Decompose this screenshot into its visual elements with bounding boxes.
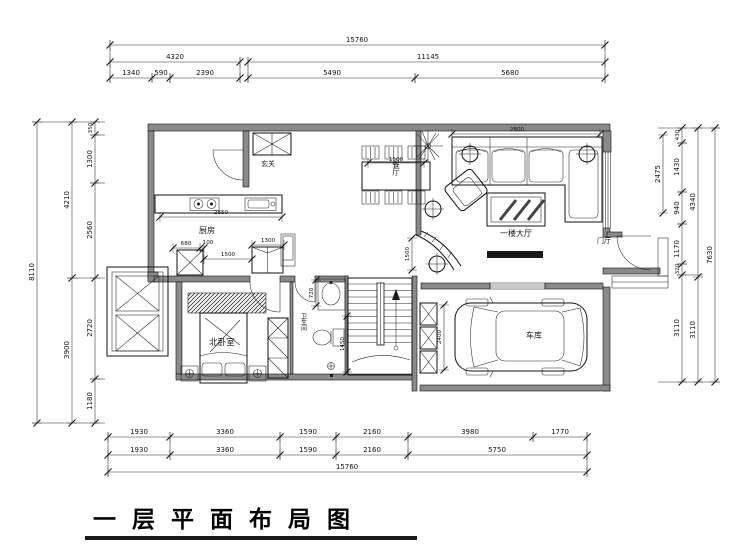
ceiling-lamp-icon bbox=[576, 143, 598, 165]
dim-label: 1930 bbox=[130, 446, 148, 454]
dim-label: 350 bbox=[88, 122, 94, 133]
room-label-kitchen: 厨房 bbox=[199, 225, 215, 235]
ceiling-lamp-icon bbox=[422, 198, 444, 220]
dim-label: 430 bbox=[675, 129, 681, 140]
dim-label: 15760 bbox=[336, 463, 358, 471]
dim-label: 3110 bbox=[689, 321, 697, 339]
dim-label: 100 bbox=[203, 240, 214, 246]
door-swing-main-entry bbox=[617, 236, 651, 270]
dim-label: 2160 bbox=[363, 446, 381, 454]
dim-label: 720 bbox=[309, 287, 315, 298]
dim-label: 2720 bbox=[86, 319, 94, 337]
room-dining: 1500 餐厅 bbox=[362, 130, 443, 204]
room-garage: 2400 车库 bbox=[420, 297, 587, 377]
dim-label: 590 bbox=[154, 69, 167, 77]
dim-label: 5680 bbox=[501, 69, 519, 77]
lightwell bbox=[107, 267, 168, 356]
room-entry: 玄关 bbox=[213, 133, 291, 180]
dim-label: 4320 bbox=[166, 53, 184, 61]
ceiling-lamp-icon bbox=[459, 143, 481, 165]
bedroom-wardrobe bbox=[268, 318, 288, 378]
dim-label: 8110 bbox=[28, 263, 36, 281]
dim-label: 4340 bbox=[689, 193, 697, 211]
dim-label: 1180 bbox=[86, 392, 94, 410]
headboard-feature-wall bbox=[188, 293, 266, 313]
dim-label: 320 bbox=[675, 263, 681, 274]
washbasin-icon bbox=[318, 279, 345, 310]
dim-label: 2850 bbox=[214, 210, 229, 216]
drawing-title: 一 层 平 面 布 局 图 bbox=[93, 506, 354, 533]
dim-label: 2400 bbox=[437, 329, 443, 344]
stair-direction-arrow bbox=[392, 289, 400, 350]
dim-label: 3360 bbox=[216, 428, 234, 436]
room-label-garage: 车库 bbox=[526, 330, 542, 340]
garage-storage bbox=[420, 303, 437, 373]
dim-label: 2800 bbox=[510, 127, 525, 133]
title-block: 一 层 平 面 布 局 图 bbox=[85, 506, 417, 540]
dim-label: 1170 bbox=[673, 240, 681, 258]
sofa bbox=[452, 137, 602, 222]
door-swing-entry bbox=[213, 150, 243, 180]
room-label-dining: 餐厅 bbox=[391, 160, 400, 176]
dim-label: 5490 bbox=[323, 69, 341, 77]
title-underline bbox=[85, 536, 417, 540]
staircase bbox=[348, 278, 412, 375]
floor-plan-drawing: 15760 4320 11145 1340 590 2390 5490 5680… bbox=[0, 0, 740, 555]
dim-label: 4210 bbox=[63, 191, 71, 209]
dim-label: 11145 bbox=[417, 53, 439, 61]
rug bbox=[487, 193, 545, 226]
dim-label: 3360 bbox=[216, 446, 234, 454]
dim-label: 1500 bbox=[221, 252, 236, 258]
tv-stand bbox=[487, 251, 543, 258]
dimension-chain-left: 8110 4210 3900 350 1300 2560 2720 1180 bbox=[28, 119, 105, 427]
dim-label: 1430 bbox=[673, 158, 681, 176]
dim-label: 2160 bbox=[363, 428, 381, 436]
hall-closets: 680 100 1500 1300 bbox=[170, 238, 288, 275]
stove-icon bbox=[190, 198, 219, 211]
room-label-foyer: 门厅 bbox=[597, 236, 611, 245]
dim-label: 680 bbox=[181, 241, 192, 247]
room-label-bathroom: 卫生间 bbox=[300, 313, 307, 332]
room-foyer: 门厅 bbox=[597, 236, 668, 288]
dim-label: 15760 bbox=[346, 36, 368, 44]
dimension-chain-bottom: 1930 3360 1590 2160 3980 1770 1930 3360 … bbox=[105, 428, 591, 477]
room-bedroom: 北卧室 bbox=[181, 282, 288, 383]
dimension-chain-top: 15760 4320 11145 1340 590 2390 5490 5680 bbox=[107, 36, 609, 83]
dim-label: 7630 bbox=[706, 246, 714, 264]
dim-label: 1300 bbox=[86, 150, 94, 168]
dimension-chain-right: 430 1430 940 1170 320 3110 4340 3110 763… bbox=[654, 125, 720, 386]
dim-label: 1590 bbox=[299, 446, 317, 454]
room-label-entry: 玄关 bbox=[261, 159, 275, 168]
floor-plan-page: 15760 4320 11145 1340 590 2390 5490 5680… bbox=[0, 0, 740, 555]
room-hall: 2800 1500 一楼大厅 bbox=[405, 127, 604, 275]
bed bbox=[200, 313, 247, 383]
room-label-bedroom: 北卧室 bbox=[209, 337, 235, 348]
dim-label: 1300 bbox=[261, 238, 276, 244]
armchair bbox=[443, 168, 488, 213]
dim-label: 3980 bbox=[461, 428, 479, 436]
dim-label: 940 bbox=[673, 201, 681, 214]
dim-label: 1450 bbox=[340, 336, 346, 351]
dim-label: 1500 bbox=[405, 246, 411, 261]
dim-label: 1770 bbox=[551, 428, 569, 436]
car-icon bbox=[455, 297, 587, 377]
room-label-hall: 一楼大厅 bbox=[500, 228, 532, 238]
dim-label: 1590 bbox=[299, 428, 317, 436]
dim-label: 1930 bbox=[130, 428, 148, 436]
room-bathroom: 720 1450 卫生间 bbox=[295, 277, 352, 378]
dim-label: 2390 bbox=[196, 69, 214, 77]
dim-label: 5750 bbox=[488, 446, 506, 454]
kitchen-sink-icon bbox=[245, 198, 276, 211]
dim-label: 2560 bbox=[86, 221, 94, 239]
dim-label: 3110 bbox=[673, 319, 681, 337]
dim-label: 3900 bbox=[63, 341, 71, 359]
dim-label: 1340 bbox=[122, 69, 140, 77]
dim-label: 2475 bbox=[654, 165, 662, 183]
